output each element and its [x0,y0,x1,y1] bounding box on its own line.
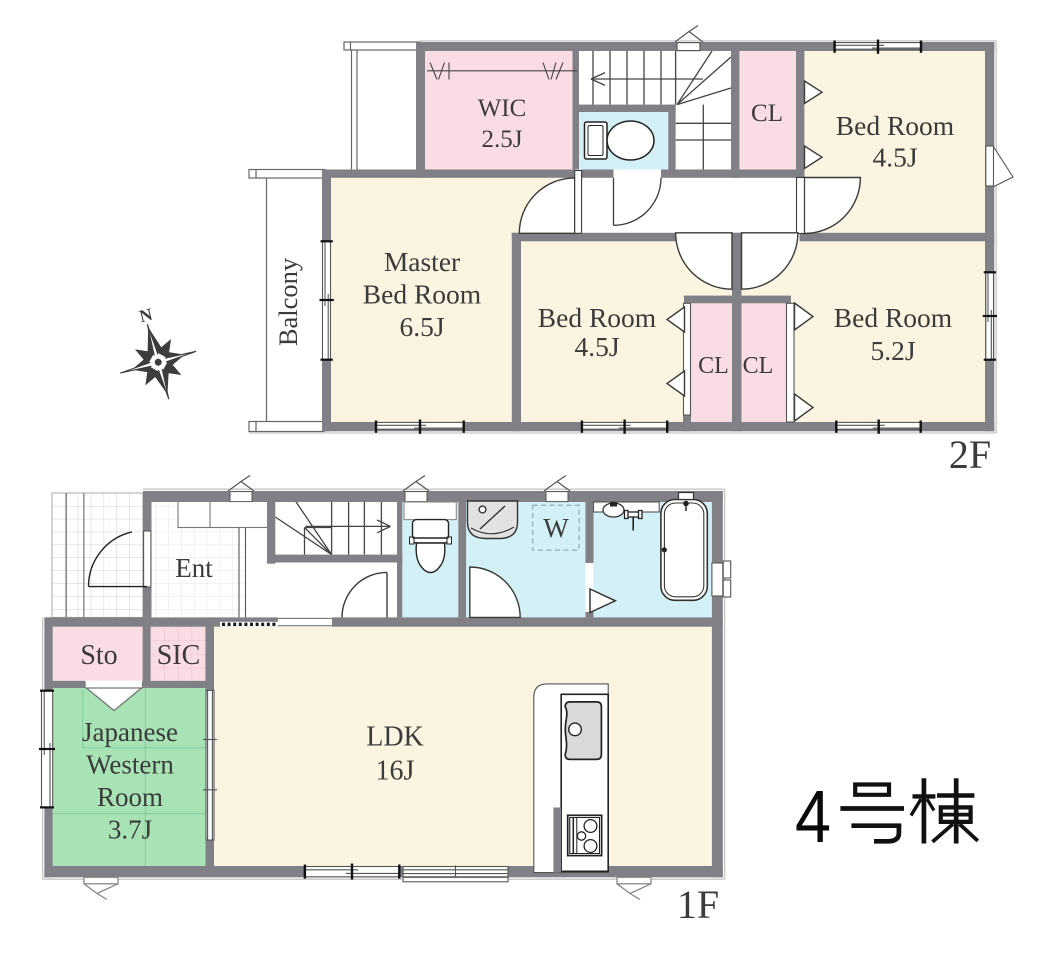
svg-text:CL: CL [751,100,783,127]
svg-text:CL: CL [698,353,729,379]
svg-text:WIC: WIC [478,95,527,122]
svg-text:Bed Room: Bed Room [363,279,481,310]
svg-text:3.7J: 3.7J [108,815,152,845]
svg-text:W: W [543,513,569,543]
svg-text:Western: Western [86,750,174,780]
svg-text:SIC: SIC [157,640,201,671]
svg-text:Sto: Sto [80,640,117,671]
svg-text:Room: Room [97,782,163,812]
svg-text:2.5J: 2.5J [482,126,523,153]
svg-text:1F: 1F [677,882,719,927]
svg-text:N: N [137,304,154,327]
svg-text:Bed Room: Bed Room [836,110,954,141]
svg-text:Balcony: Balcony [273,257,303,346]
svg-text:4.5J: 4.5J [574,331,619,362]
svg-text:Japanese: Japanese [82,717,178,747]
svg-text:16J: 16J [376,756,415,787]
svg-text:6.5J: 6.5J [399,311,444,342]
svg-text:4: 4 [795,775,831,858]
svg-text:Ent: Ent [175,553,213,583]
svg-text:Bed Room: Bed Room [834,302,952,333]
svg-text:5.2J: 5.2J [870,335,915,366]
svg-text:CL: CL [743,353,774,379]
svg-text:Master: Master [384,246,460,277]
svg-text:4.5J: 4.5J [872,142,917,173]
svg-text:2F: 2F [949,432,991,477]
svg-text:LDK: LDK [366,722,424,753]
svg-text:Bed Room: Bed Room [538,302,656,333]
